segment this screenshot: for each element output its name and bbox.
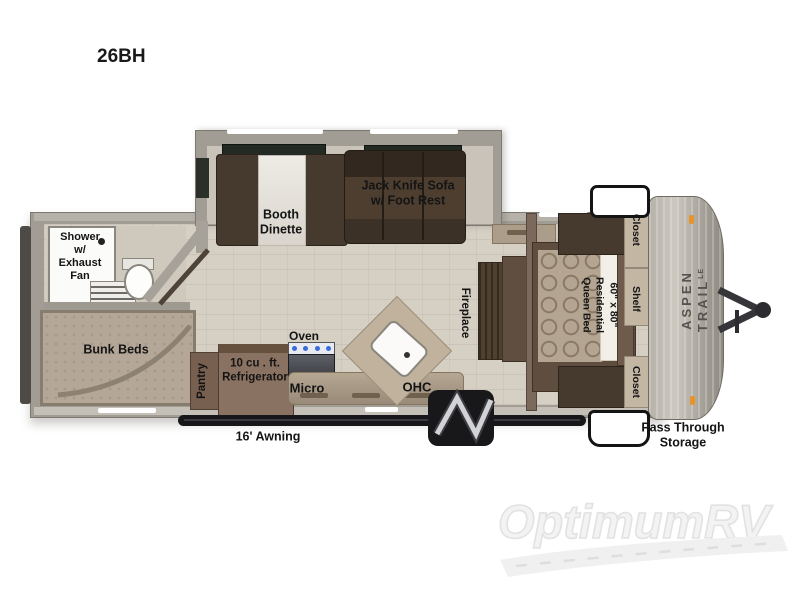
shelf-label: Shelf: [630, 286, 642, 312]
dinette-bench-left: [216, 154, 262, 246]
hitch-frame-lower: [719, 310, 760, 330]
ohc-label: OHC: [403, 379, 432, 394]
closet-bottom-label: Closet: [630, 366, 642, 398]
brand-suffix: LE: [698, 268, 705, 279]
bunk-bed: [40, 310, 196, 406]
rear-bumper: [20, 226, 31, 404]
toilet: [124, 264, 154, 300]
marker-light-top: [689, 215, 694, 224]
brand-text: ASPEN TRAIL: [679, 270, 709, 332]
closet-top-label: Closet: [630, 214, 642, 246]
wall-post: [196, 221, 208, 253]
pantry-label: Pantry: [196, 363, 210, 399]
hitch-frame-upper: [719, 290, 760, 310]
bottom-wall-trim: [365, 407, 398, 412]
booth-dinette-label: Booth Dinette: [260, 207, 302, 237]
queen-bed-label: 60" x 80" Residential Queen Bed: [579, 277, 620, 333]
slide-roof-trim: [227, 129, 323, 134]
hitch-coupler: [755, 302, 771, 318]
slide-roof-trim: [370, 129, 458, 134]
bottom-wall-trim: [98, 408, 156, 413]
jack-knife-sofa-label: Jack Knife Sofa w/ Foot Rest: [361, 178, 454, 208]
awning-label: 16' Awning: [236, 430, 301, 445]
counter-handle: [352, 393, 380, 398]
floorplan-canvas: 26BH: [0, 0, 800, 600]
entry-steps: [428, 390, 494, 446]
brand-logo: ASPEN TRAILLE: [664, 244, 710, 357]
micro-label: Micro: [290, 380, 325, 395]
marker-light-bottom: [690, 396, 695, 405]
model-number: 26BH: [97, 46, 146, 68]
sink-faucet: [404, 352, 410, 358]
dinette-bench-right: [302, 154, 348, 246]
bathroom-wall: [44, 302, 190, 310]
oven-label: Oven: [289, 329, 319, 343]
slide-window-side: [196, 158, 209, 198]
refrigerator-label: 10 cu . ft. Refrigerator: [222, 357, 288, 384]
pass-through-label: Pass Through Storage: [641, 420, 724, 450]
bunk-beds-label: Bunk Beds: [83, 343, 148, 358]
awning-bar-highlight: [184, 419, 580, 421]
bedroom-cabinet-top: [558, 213, 634, 255]
bedroom-cabinet-bottom: [558, 366, 634, 408]
watermark-logo: OptimumRV: [498, 494, 770, 549]
fireplace-label: Fireplace: [457, 288, 471, 339]
shower-label: Shower w/ Exhaust Fan: [59, 231, 102, 283]
